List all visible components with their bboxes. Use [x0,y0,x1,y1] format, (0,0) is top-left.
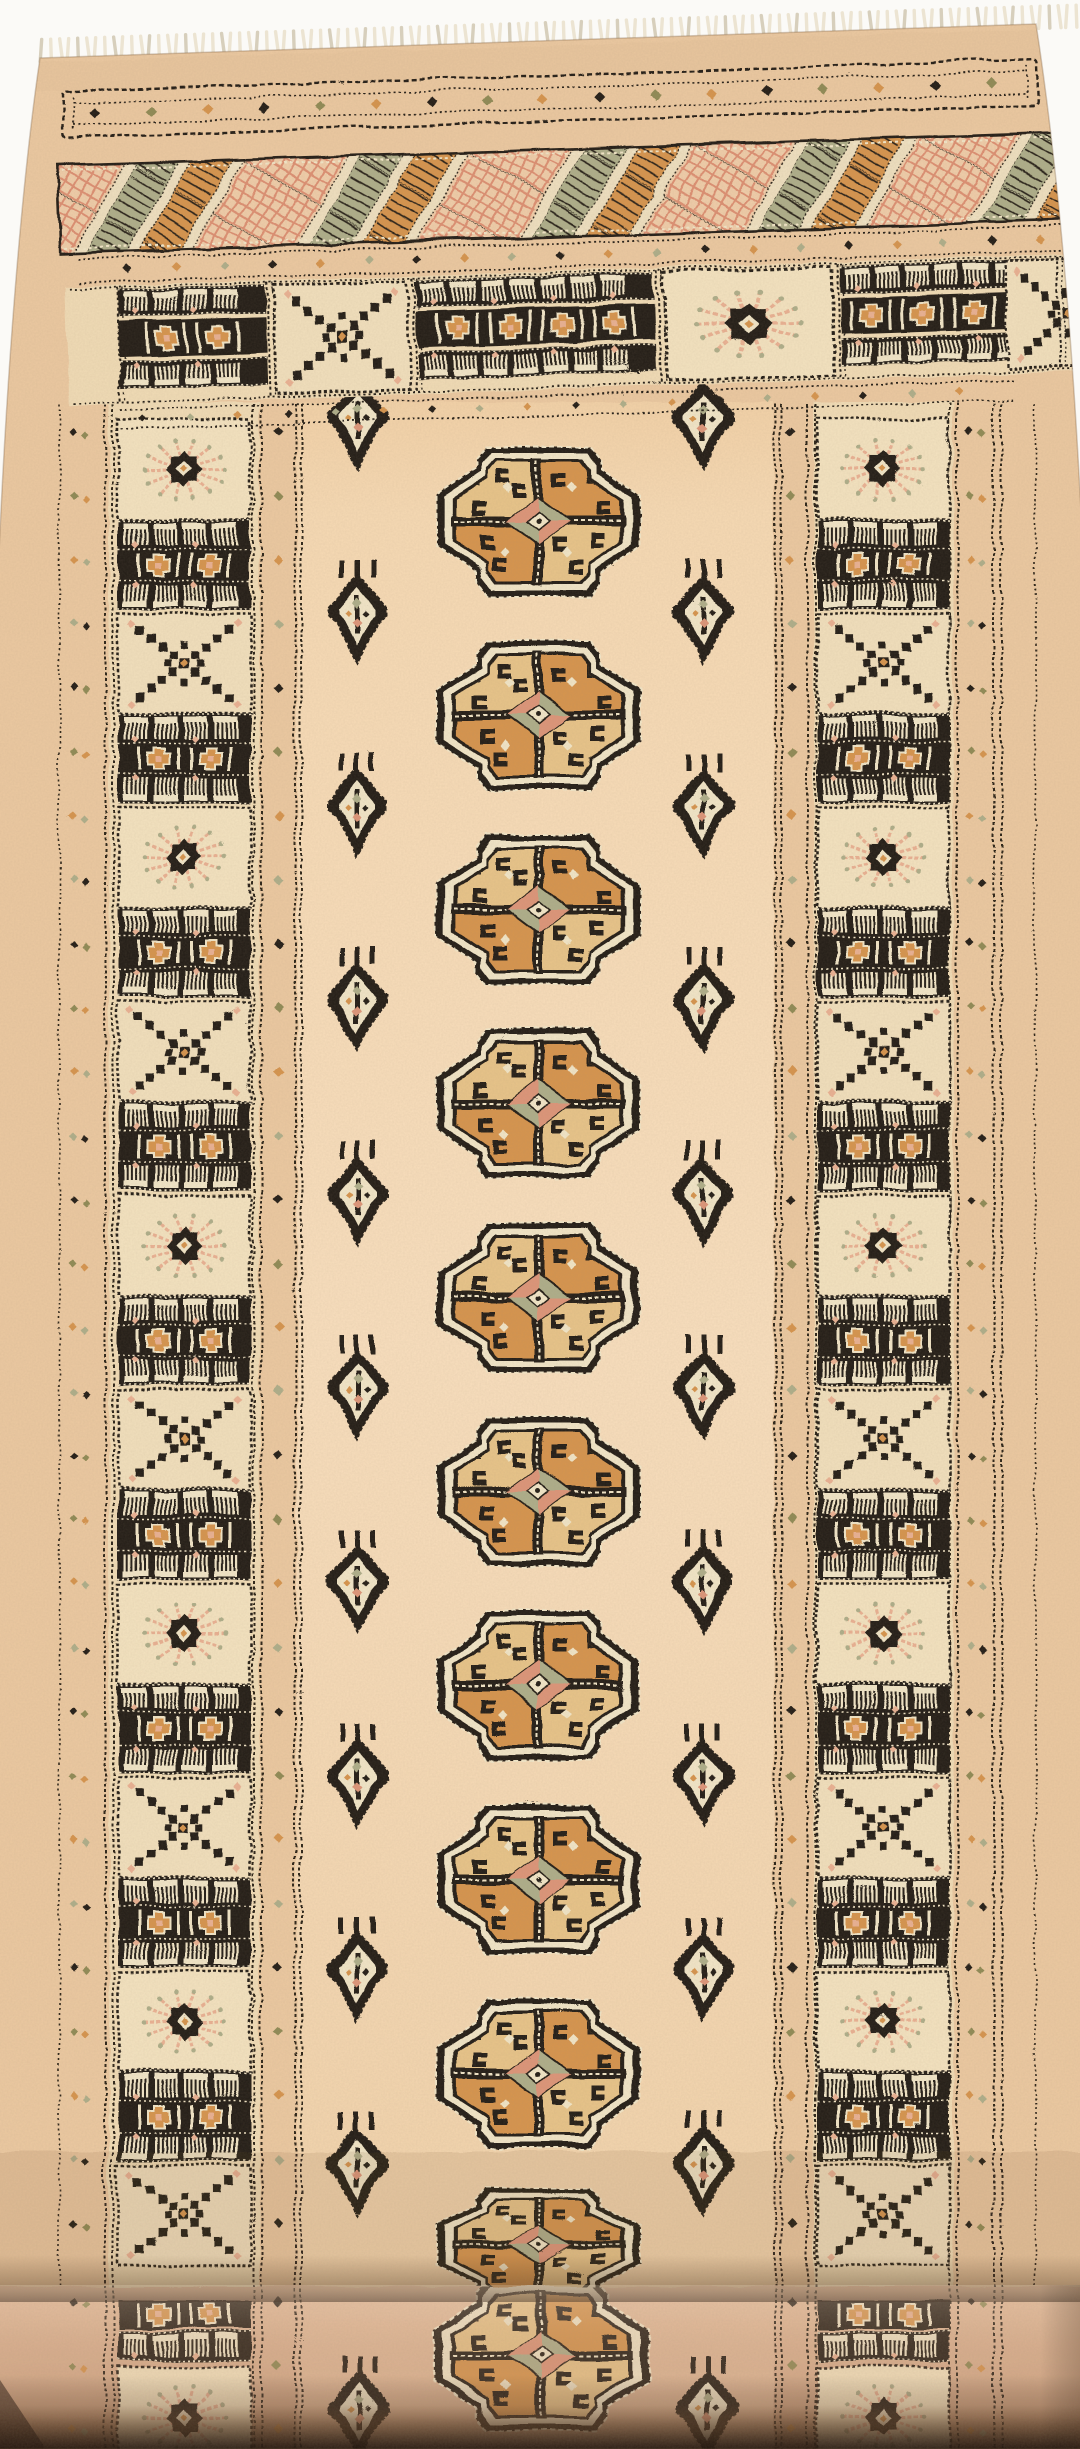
rug-photo-svg [0,0,1080,2449]
rug-photo [0,0,1080,2449]
wool-grain [0,20,1080,2449]
rug-body [0,20,1080,2449]
